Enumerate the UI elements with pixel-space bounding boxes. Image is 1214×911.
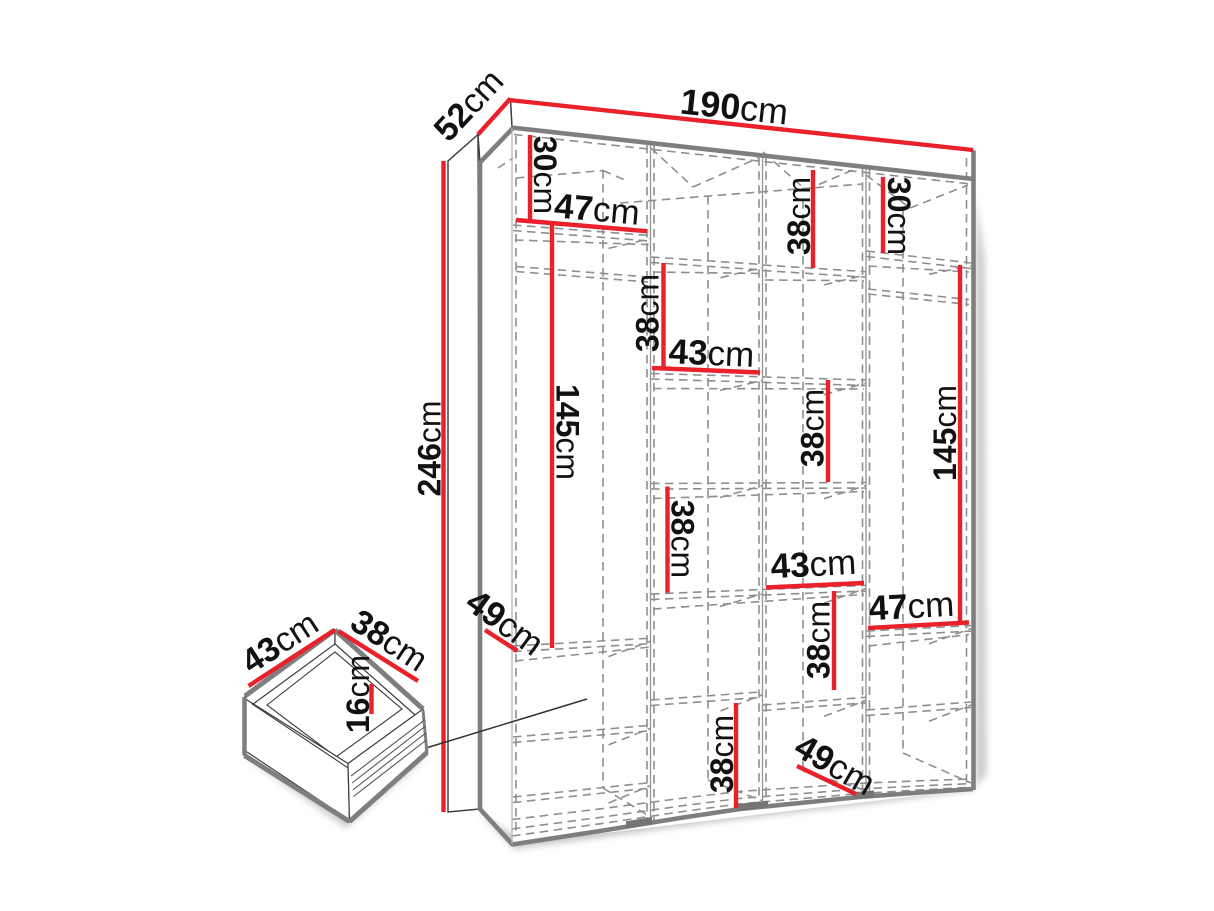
svg-text:145cm: 145cm	[927, 385, 963, 481]
svg-text:43cm: 43cm	[770, 543, 858, 586]
svg-text:30cm: 30cm	[881, 177, 917, 255]
svg-text:43cm: 43cm	[668, 332, 755, 375]
svg-text:38cm: 38cm	[665, 500, 701, 578]
svg-text:145cm: 145cm	[550, 384, 586, 480]
svg-text:38cm: 38cm	[704, 715, 740, 793]
svg-text:38cm: 38cm	[801, 601, 837, 679]
svg-text:246cm: 246cm	[412, 400, 448, 496]
svg-text:47cm: 47cm	[868, 585, 956, 628]
svg-text:38cm: 38cm	[795, 389, 831, 467]
svg-text:38cm: 38cm	[781, 177, 817, 255]
svg-text:16cm: 16cm	[340, 655, 376, 733]
svg-text:47cm: 47cm	[553, 186, 642, 232]
svg-text:38cm: 38cm	[630, 274, 666, 352]
